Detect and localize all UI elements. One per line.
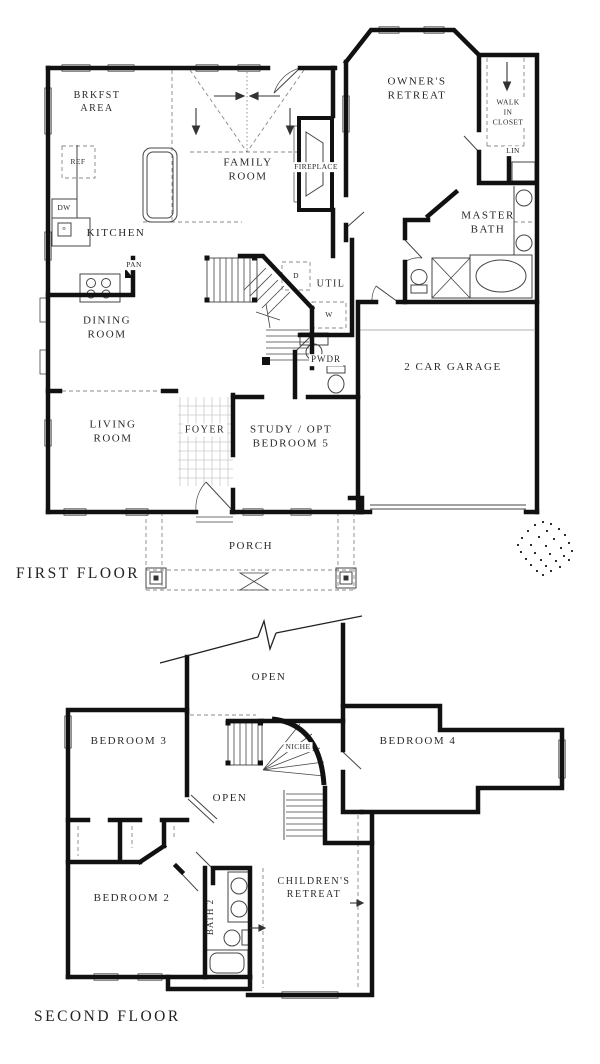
label-bath-2: BATH 2 [205,899,217,935]
label-brkfst-area: BRKFST AREA [74,89,121,115]
label-garage: 2 CAR GARAGE [404,360,501,374]
label-oven: o [62,225,65,233]
label-childrens-retreat: CHILDREN'S RETREAT [278,875,351,901]
label-walk-in-closet: WALK IN CLOSET [491,97,526,126]
label-linen: LIN [504,146,522,156]
label-open-lower: OPEN [213,791,248,805]
label-open-upper: OPEN [252,670,287,684]
label-powder: PWDR [309,354,343,366]
label-fireplace: FIREPLACE [292,162,340,172]
label-porch: PORCH [229,539,273,553]
tree-icon [517,521,573,576]
label-refrigerator: REF [71,157,86,167]
label-utility: UTIL [317,278,346,291]
label-niche: NICHE [284,742,313,752]
label-dining-room: DINING ROOM [83,314,131,343]
label-bedroom-3: BEDROOM 3 [91,734,168,748]
floorplan-linework [0,0,600,1064]
label-living-room: LIVING ROOM [90,418,137,447]
first-floor-title: FIRST FLOOR [16,565,140,583]
label-master-bath: MASTER BATH [461,209,515,238]
label-kitchen: KITCHEN [87,226,146,240]
label-washer: W [325,310,332,320]
label-bedroom-4: BEDROOM 4 [380,734,457,748]
label-bedroom-2: BEDROOM 2 [94,891,171,905]
label-dryer: D [293,271,299,281]
second-floor-title: SECOND FLOOR [34,1008,181,1026]
label-family-room: FAMILY ROOM [223,156,272,185]
floor-plan-document: BRKFST AREA FAMILY ROOM FIREPLACE OWNER'… [0,0,600,1064]
label-pantry: PAN [124,260,144,270]
label-study: STUDY / OPT BEDROOM 5 [250,423,332,452]
label-owners-retreat: OWNER'S RETREAT [388,75,447,104]
label-foyer: FOYER [183,424,227,437]
label-dishwasher: DW [57,203,70,213]
